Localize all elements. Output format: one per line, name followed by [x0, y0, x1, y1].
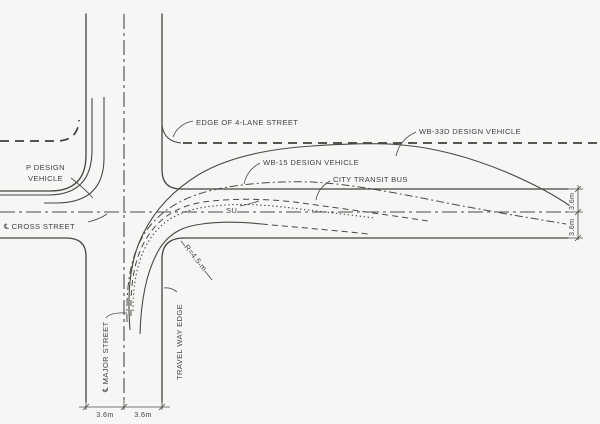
lane-width-right-upper: 3.6m	[567, 193, 576, 210]
wb-33d-inner-track-tail	[262, 224, 368, 234]
dimension-right: 3.6m 3.6m	[567, 185, 583, 241]
wb-33d-path	[129, 144, 570, 330]
su-leader	[240, 201, 259, 206]
cross-street-label: ℄ CROSS STREET	[4, 222, 75, 231]
city-transit-bus-label: CITY TRANSIT BUS	[333, 175, 408, 184]
bus-leader	[316, 181, 330, 200]
wb-33d-inner-track	[140, 222, 262, 334]
west-leg-top-edge	[0, 155, 86, 191]
lane-width-bottom-right: 3.6m	[134, 410, 151, 419]
edge-4lane-leader	[173, 121, 193, 137]
su-label: SU	[226, 206, 237, 215]
cross-street-leader	[88, 214, 107, 222]
wb-15-label: WB-15 DESIGN VEHICLE	[263, 158, 359, 167]
centerlines	[0, 14, 568, 400]
wb-33d-label: WB-33D DESIGN VEHICLE	[419, 127, 521, 136]
major-street-label: ℄ MAJOR STREET	[101, 321, 110, 392]
bottom-ext-lines	[86, 400, 162, 410]
wb-33d-leader	[396, 132, 416, 156]
p-design-leader	[71, 178, 93, 198]
p-design-label-line1: P DESIGN	[26, 163, 65, 172]
wb-15-leader	[244, 163, 260, 184]
travel-way-edge-leader	[164, 288, 177, 292]
travel-way-edge-label: TRAVEL WAY EDGE	[175, 304, 184, 380]
city-transit-bus-path	[131, 199, 428, 316]
radius-label: R=4.5 m	[182, 243, 208, 273]
labels: EDGE OF 4-LANE STREET WB-33D DESIGN VEHI…	[4, 118, 521, 392]
lane-width-right-lower: 3.6m	[567, 219, 576, 236]
lane-width-bottom-left: 3.6m	[96, 410, 113, 419]
turning-path-diagram: 3.6m 3.6m 3.6m 3.6m EDGE OF 4-LANE STREE…	[0, 0, 600, 424]
edge-4lane-label: EDGE OF 4-LANE STREET	[196, 118, 298, 127]
p-design-label-line2: VEHICLE	[28, 174, 63, 183]
west-leg-bottom-edge	[0, 238, 86, 402]
right-edge-flare	[162, 124, 181, 143]
street-edges	[0, 14, 568, 402]
dimension-bottom: 3.6m 3.6m	[79, 400, 170, 419]
east-leg-bottom-edge	[162, 238, 568, 402]
su-path	[133, 205, 374, 311]
leader-lines	[71, 121, 416, 318]
diagram-canvas: 3.6m 3.6m 3.6m 3.6m EDGE OF 4-LANE STREE…	[0, 0, 600, 424]
four-lane-edge-west	[0, 120, 79, 141]
p-vehicle-inner-track	[44, 97, 104, 203]
